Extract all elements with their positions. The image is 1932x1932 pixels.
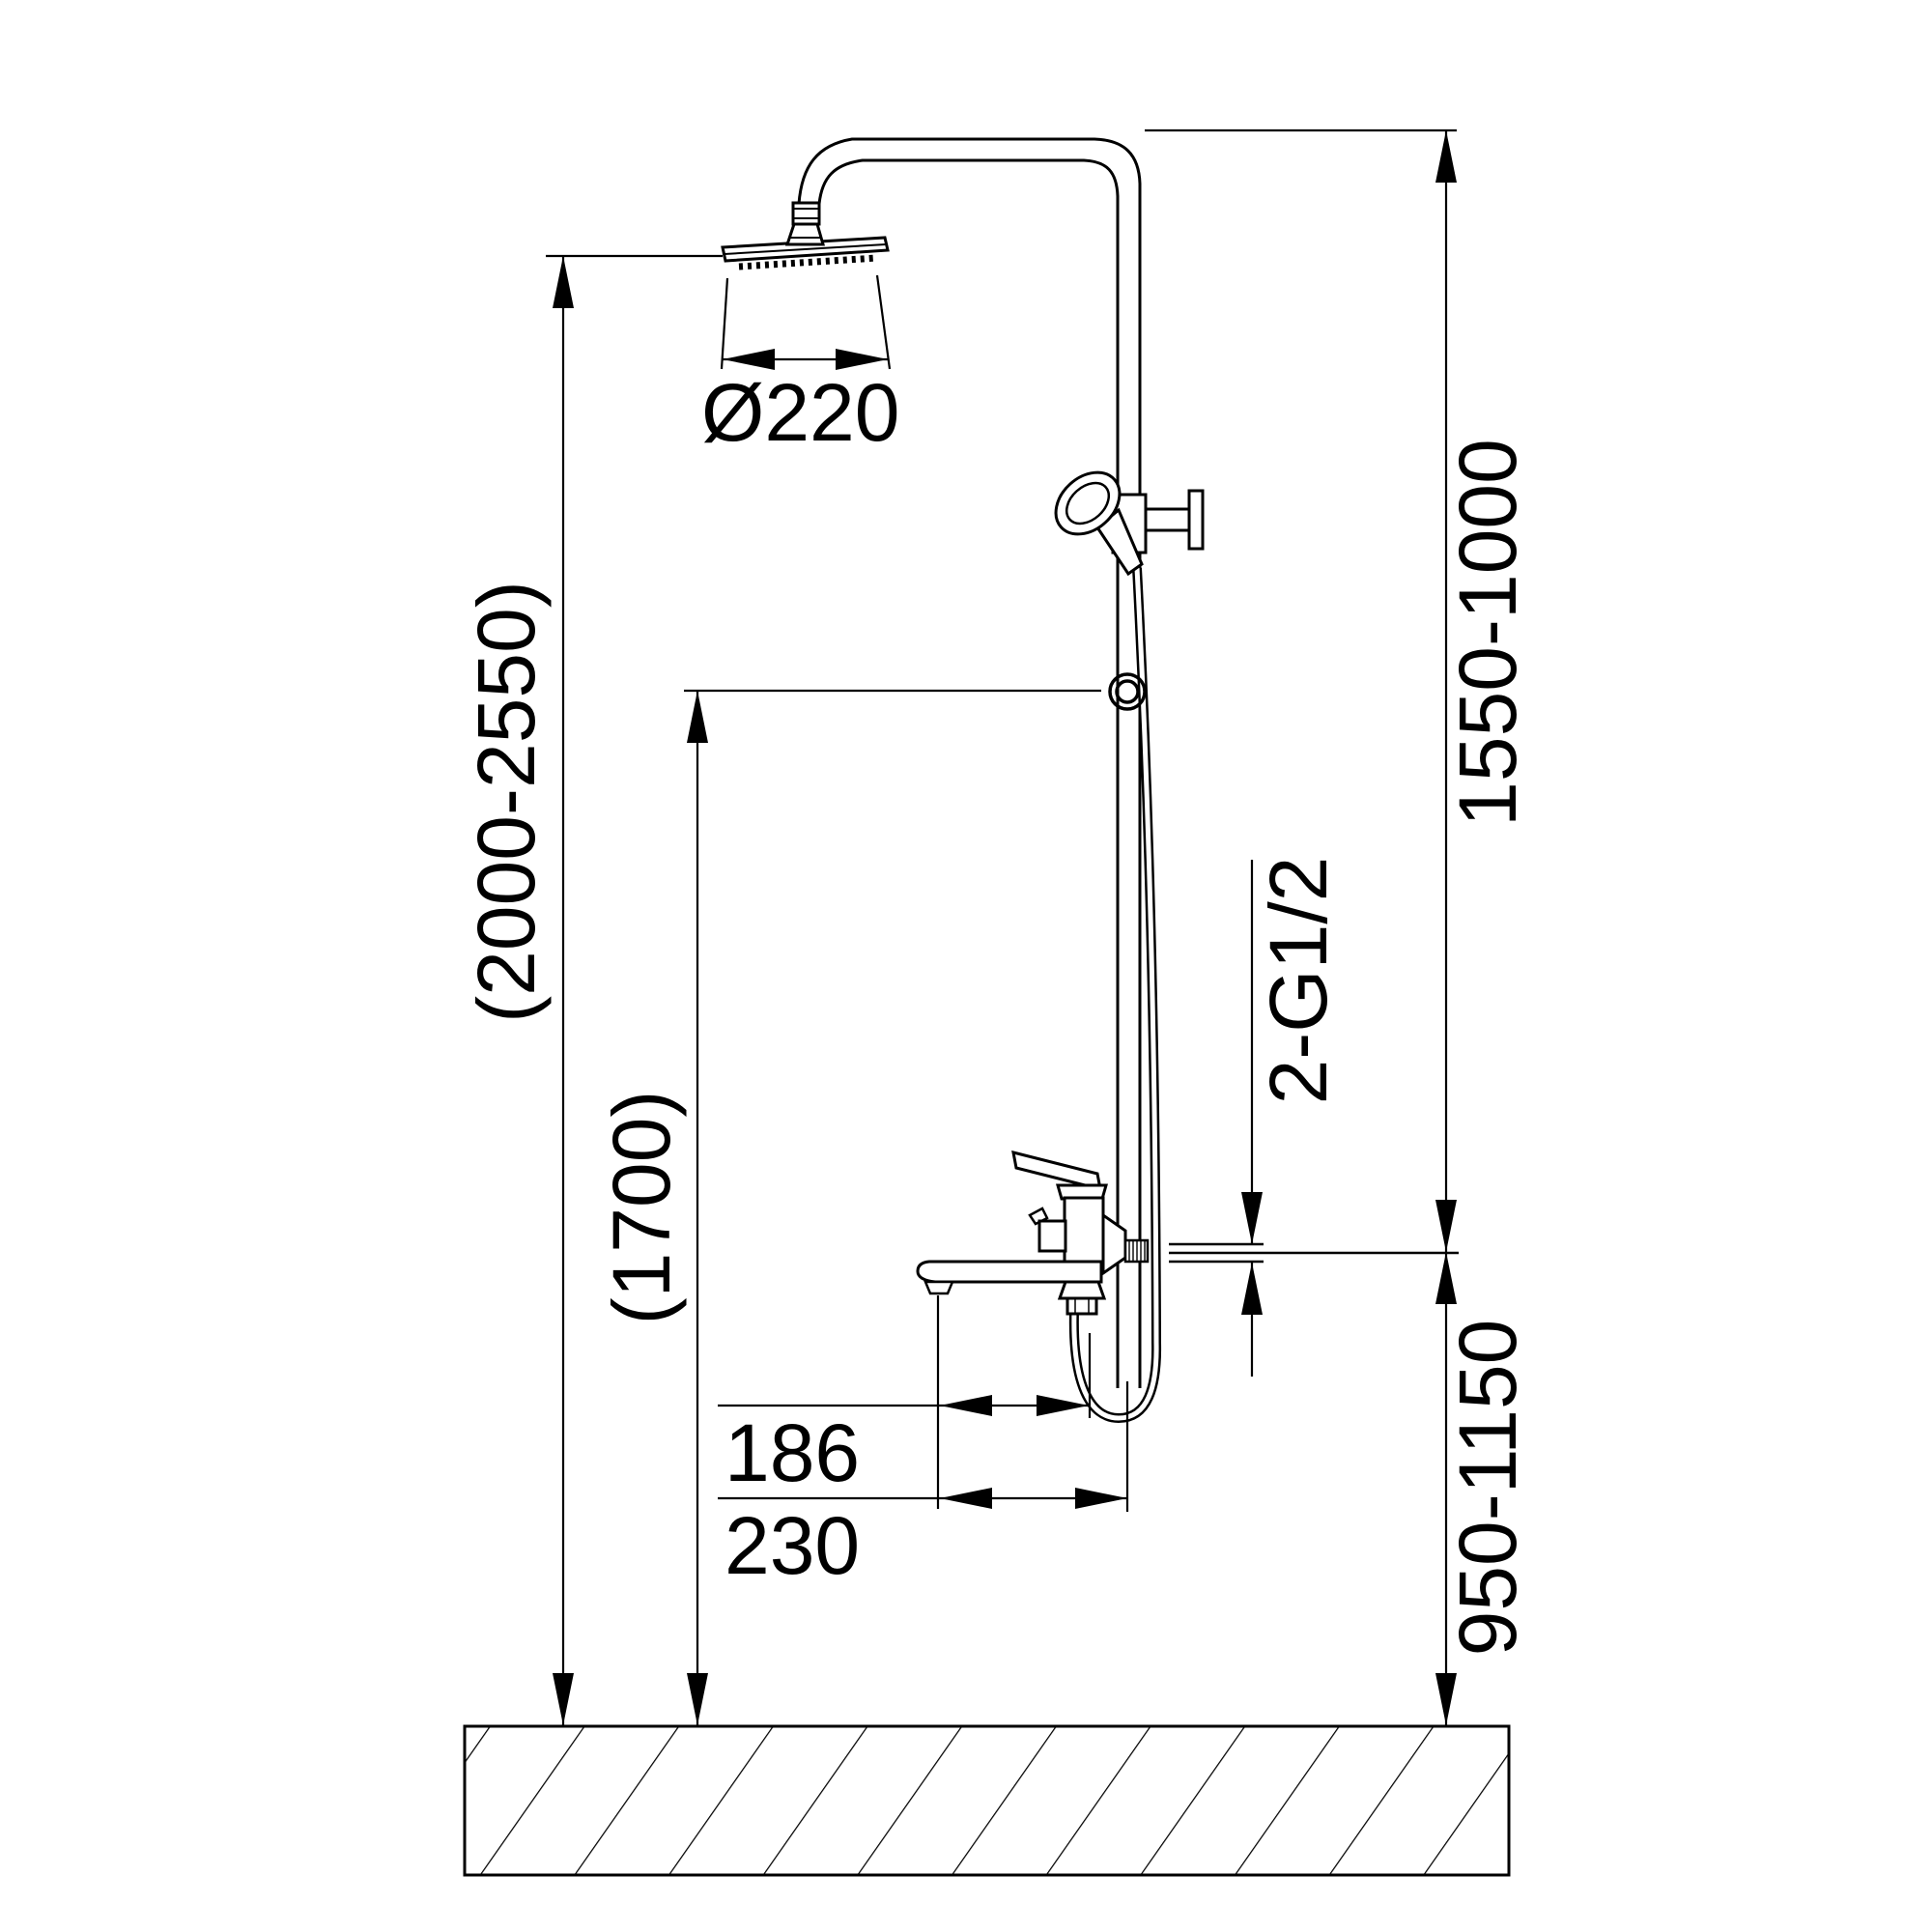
mixer-with-lever bbox=[1013, 1152, 1148, 1273]
mixer-body bbox=[1065, 1198, 1103, 1267]
tub-spout bbox=[918, 1262, 1104, 1314]
label-spout-dim-outer: 230 bbox=[724, 1505, 860, 1586]
wall-connection bbox=[1169, 1244, 1459, 1262]
spout-aerator bbox=[925, 1282, 952, 1293]
label-hand-shower-height: (1700) bbox=[601, 1091, 682, 1325]
rain-shower-head bbox=[723, 203, 888, 267]
technical-drawing-page: Ø220 (2000-2550) (1700) 1550-1000 2-G1/2… bbox=[0, 0, 1932, 1932]
bracket-knob bbox=[1146, 509, 1194, 530]
slider-holder-ring bbox=[1110, 674, 1145, 709]
drawing-canvas bbox=[0, 0, 1932, 1932]
hose-nut bbox=[1067, 1298, 1096, 1314]
wall-escutcheon bbox=[1103, 1215, 1125, 1273]
label-spout-dim-inner: 186 bbox=[724, 1412, 860, 1493]
diverter-knob bbox=[1039, 1221, 1065, 1251]
label-head-diameter: Ø220 bbox=[701, 372, 900, 453]
label-overall-height: (2000-2550) bbox=[466, 581, 547, 1023]
floor bbox=[465, 1726, 1509, 1875]
label-mixer-install-height: 950-1150 bbox=[1447, 1320, 1528, 1657]
mixer-lever bbox=[1013, 1152, 1100, 1189]
label-riser-adjust-range: 1550-1000 bbox=[1447, 439, 1528, 827]
label-thread-connection: 2-G1/2 bbox=[1258, 857, 1339, 1105]
